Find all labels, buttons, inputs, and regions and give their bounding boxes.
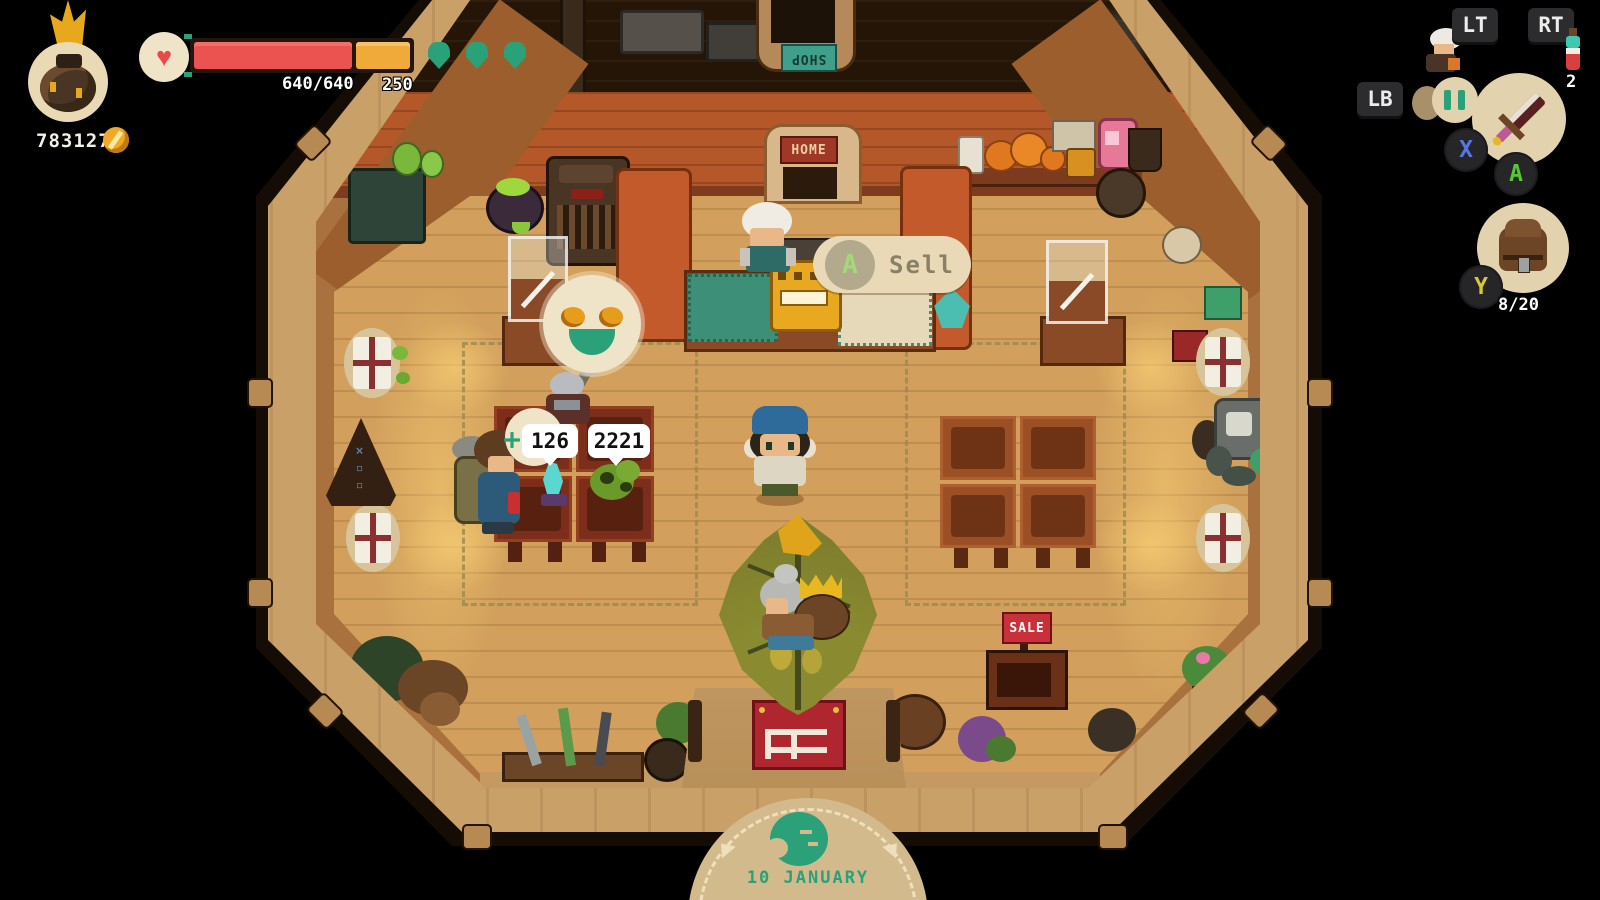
heart-icon: ♥	[156, 44, 172, 71]
flower-decor-green	[986, 736, 1016, 762]
skull-trinket	[1162, 226, 1202, 264]
green-bottle	[392, 142, 422, 176]
y-label: Y	[1474, 274, 1488, 300]
beanie-girl-customer	[744, 406, 816, 506]
sell-prompt[interactable]: A Sell	[813, 236, 971, 293]
window-vine	[396, 372, 410, 384]
a-button-glyph: A	[842, 250, 858, 280]
shopkeeper-character	[740, 202, 796, 276]
smiley-bubble	[543, 275, 641, 373]
cauldron-goo	[496, 178, 530, 196]
cabinet-dark	[348, 168, 426, 244]
creature-item[interactable]	[590, 460, 642, 504]
date-label: 10 JANUARY	[688, 868, 928, 888]
potion-count: 2	[1566, 72, 1576, 92]
a-button[interactable]: A	[1494, 152, 1538, 196]
shield-bar-fill	[356, 42, 410, 69]
girl-face	[760, 434, 800, 456]
x-label: X	[1459, 137, 1473, 163]
item-table[interactable]	[940, 484, 1016, 548]
rt-label: RT	[1538, 13, 1563, 37]
y-button[interactable]: Y	[1459, 265, 1503, 309]
potion-icon[interactable]	[1566, 28, 1580, 72]
entrance-post	[886, 700, 900, 762]
item-table[interactable]	[1020, 416, 1096, 480]
round-window	[1196, 504, 1250, 572]
table-leg	[994, 548, 1008, 568]
frame-peg	[247, 378, 273, 408]
room-interior: SHOP HOME	[0, 0, 1600, 900]
item-table[interactable]	[1020, 484, 1096, 548]
price-value: 2221	[594, 429, 645, 453]
coin-icon	[103, 127, 129, 153]
shop-sign: SHOP	[781, 44, 837, 72]
old-lady-bun	[774, 564, 798, 584]
a-button-badge: A	[825, 240, 875, 290]
amulet-icon	[1444, 90, 1451, 110]
girl-beanie	[752, 406, 808, 434]
old-lady-character	[752, 570, 848, 654]
crown-flame-icon	[50, 0, 90, 48]
a-label: A	[1509, 161, 1523, 187]
tent-glyphs: ×▫▫	[352, 444, 367, 495]
health-bar-fill	[194, 42, 352, 69]
price-value: 126	[531, 429, 569, 453]
lb-button[interactable]: LB	[1357, 82, 1403, 116]
table-leg	[632, 542, 646, 562]
gold-count: 783127	[36, 130, 111, 152]
girl-pants	[762, 484, 798, 496]
moon-icon	[770, 812, 828, 866]
frame-peg	[462, 824, 492, 850]
price-bubble: 2221	[588, 424, 650, 458]
crystal-item[interactable]	[541, 462, 567, 506]
item-table[interactable]	[940, 416, 1016, 480]
shopkeeper-vest	[746, 246, 790, 272]
lt-label: LT	[1462, 13, 1487, 37]
metal-tray	[620, 10, 704, 54]
price-bubble: 126	[522, 424, 578, 458]
table-leg	[1036, 548, 1050, 568]
player-avatar	[28, 24, 108, 106]
smile	[569, 329, 615, 355]
hero-potion	[508, 492, 520, 514]
frame-peg	[1307, 378, 1333, 408]
shopkeeper-face	[750, 228, 784, 248]
table-leg	[592, 542, 606, 562]
sword-icon	[1478, 77, 1563, 162]
avatar-frame	[28, 42, 108, 122]
green-bottle	[420, 150, 444, 178]
sell-label: Sell	[889, 251, 955, 279]
table-leg	[954, 548, 968, 568]
lb-label: LB	[1367, 87, 1392, 111]
shield-value: 250	[382, 75, 413, 95]
table-leg	[508, 542, 522, 562]
girl-sweater	[754, 456, 806, 486]
window-vine	[392, 346, 408, 360]
lt-button[interactable]: LT	[1452, 8, 1498, 42]
game-screen: SHOP HOME	[0, 0, 1600, 900]
frame-peg	[1307, 578, 1333, 608]
round-window	[1196, 328, 1250, 396]
heart-frame: ♥	[139, 32, 189, 82]
table-leg	[548, 542, 562, 562]
table-leg	[1076, 548, 1090, 568]
home-sign: HOME	[780, 136, 838, 164]
dark-item-decor	[1088, 708, 1136, 752]
x-button[interactable]: X	[1444, 128, 1488, 172]
merchant-sack-icon	[40, 64, 96, 112]
coin-eye	[599, 307, 623, 327]
frame-peg	[1098, 824, 1128, 850]
shop-sign-label: SHOP	[791, 51, 826, 66]
backpack-icon	[1499, 219, 1547, 275]
sale-chest[interactable]	[986, 650, 1068, 710]
green-book	[1204, 286, 1242, 320]
pot-decor	[644, 738, 690, 782]
sale-sign-label: SALE	[1009, 621, 1044, 636]
sale-sign: SALE	[1002, 612, 1052, 644]
health-value: 640/640	[282, 74, 354, 94]
amber-bottle	[1066, 148, 1096, 178]
shop-door-opening	[771, 0, 835, 43]
round-window	[344, 328, 400, 398]
charge-bracket	[184, 72, 192, 77]
bag-count: 8/20	[1498, 295, 1539, 315]
home-door-opening	[783, 167, 837, 199]
frame-peg	[247, 578, 273, 608]
coin-eye	[561, 307, 585, 327]
round-window	[346, 504, 400, 572]
entrance-post	[688, 700, 702, 762]
mushroom-decor	[420, 692, 460, 726]
counter-mat-teal	[688, 274, 778, 342]
round-pot	[1096, 168, 1146, 218]
home-sign-label: HOME	[791, 143, 826, 158]
display-case-right[interactable]	[1046, 240, 1108, 324]
old-lady-pants	[768, 636, 814, 650]
wall-plant-pot	[1128, 128, 1162, 172]
